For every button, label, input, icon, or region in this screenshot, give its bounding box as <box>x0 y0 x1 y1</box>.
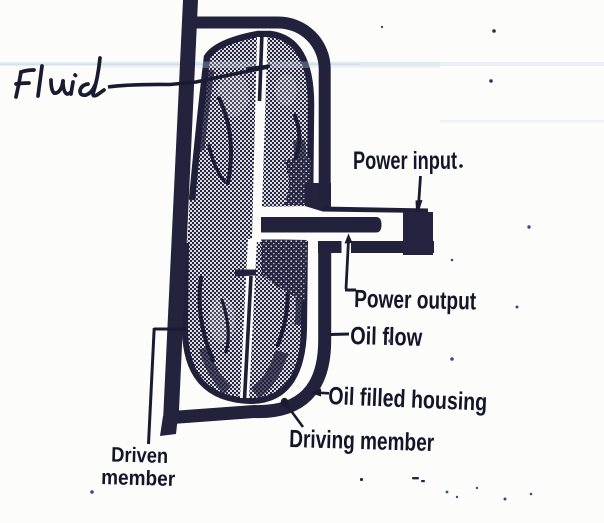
svg-text:Oil filled housing: Oil filled housing <box>328 382 488 417</box>
svg-text:Power input: Power input <box>353 147 457 175</box>
svg-text:member: member <box>101 466 176 491</box>
svg-text:Driving member: Driving member <box>289 425 435 457</box>
svg-text:Power output: Power output <box>354 285 477 316</box>
svg-text:Oil flow: Oil flow <box>350 322 423 352</box>
svg-text:Driven: Driven <box>111 444 169 468</box>
